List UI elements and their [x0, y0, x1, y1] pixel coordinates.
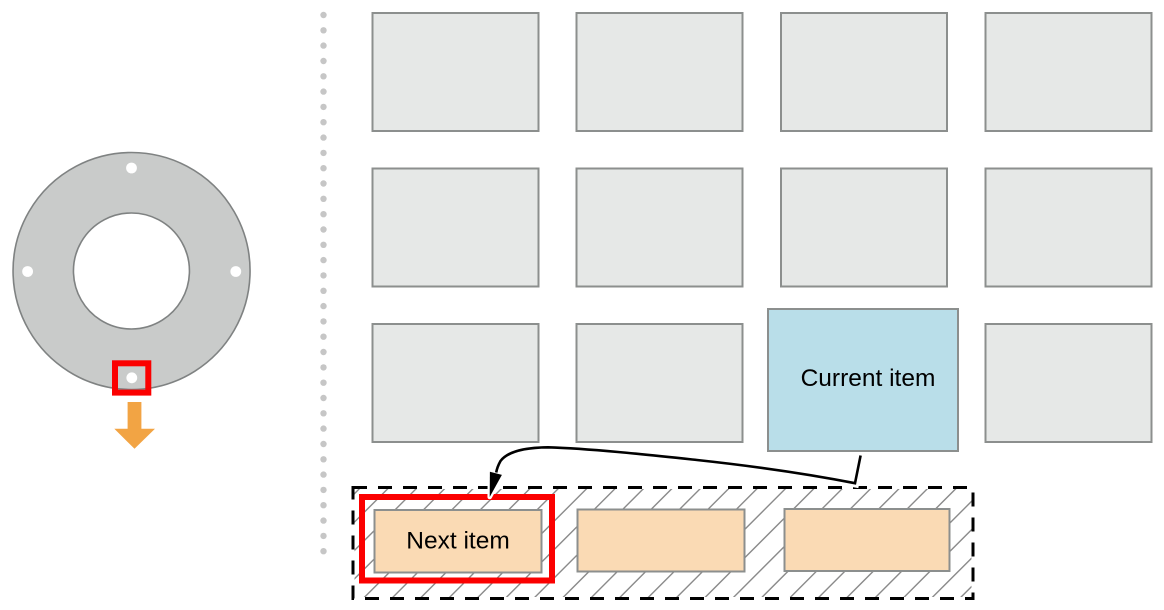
svg-text:Next item: Next item — [406, 528, 509, 555]
svg-text:Current item: Current item — [801, 365, 936, 392]
